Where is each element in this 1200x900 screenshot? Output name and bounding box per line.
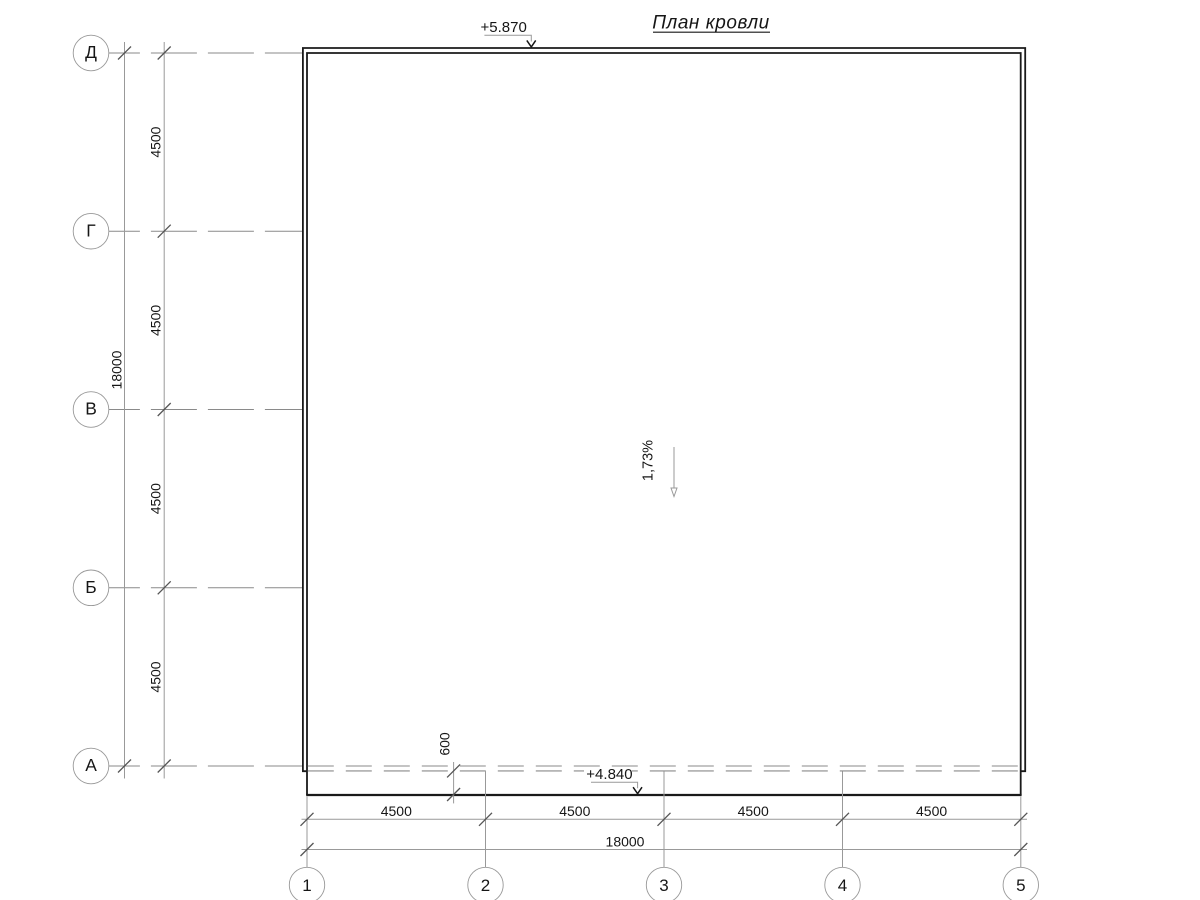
svg-text:4500: 4500 [738,803,769,819]
svg-text:2: 2 [481,876,490,895]
svg-text:4500: 4500 [381,803,412,819]
svg-text:Д: Д [85,42,97,62]
svg-text:+5.870: +5.870 [481,19,527,36]
svg-text:4500: 4500 [916,803,947,819]
svg-text:4: 4 [838,876,847,895]
svg-text:5: 5 [1016,876,1025,895]
svg-text:4500: 4500 [148,305,164,336]
svg-text:3: 3 [659,876,668,895]
svg-text:4500: 4500 [148,126,164,157]
svg-text:4500: 4500 [148,483,164,514]
svg-text:1,73%: 1,73% [641,440,657,481]
svg-text:4500: 4500 [148,661,164,692]
svg-text:В: В [85,399,97,419]
svg-text:План кровли: План кровли [652,13,770,34]
svg-text:А: А [85,755,97,775]
svg-text:18000: 18000 [109,350,125,389]
svg-text:1: 1 [302,876,311,895]
svg-text:Г: Г [86,220,96,240]
svg-text:600: 600 [437,732,453,756]
svg-text:4500: 4500 [559,803,590,819]
svg-text:18000: 18000 [606,833,645,849]
svg-text:+4.840: +4.840 [586,766,632,783]
svg-text:Б: Б [85,577,96,597]
